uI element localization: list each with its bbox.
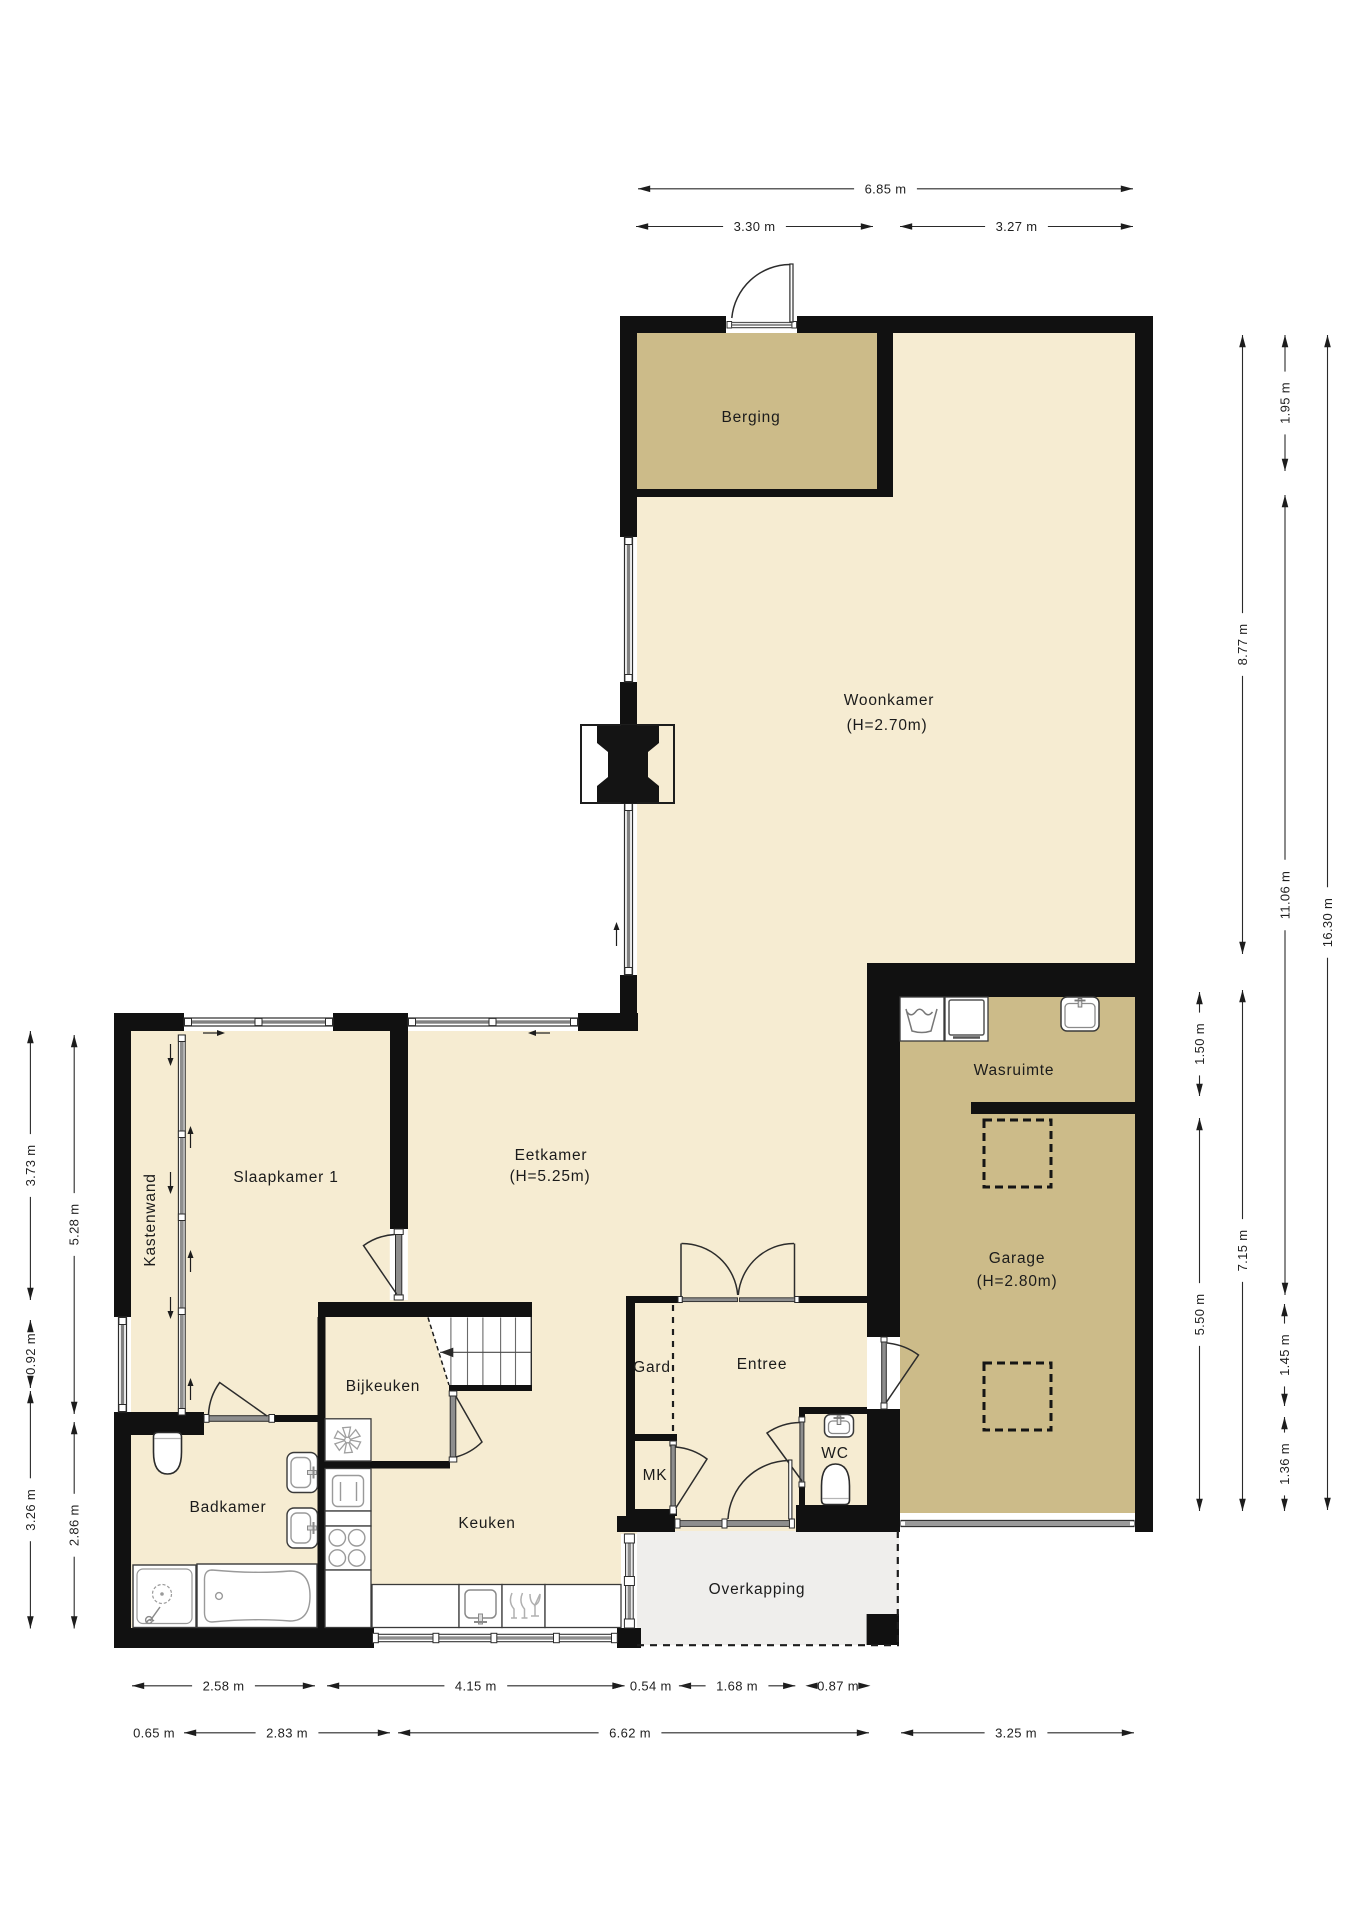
svg-text:5.50 m: 5.50 m <box>1192 1294 1207 1336</box>
svg-text:3.73 m: 3.73 m <box>23 1145 38 1187</box>
svg-text:WC: WC <box>821 1445 848 1462</box>
svg-text:2.58 m: 2.58 m <box>203 1678 245 1693</box>
svg-text:Kastenwand: Kastenwand <box>142 1173 159 1266</box>
svg-text:Gard: Gard <box>633 1359 671 1376</box>
svg-text:2.83 m: 2.83 m <box>266 1725 308 1740</box>
svg-text:Slaapkamer 1: Slaapkamer 1 <box>233 1169 338 1186</box>
svg-text:6.85 m: 6.85 m <box>865 181 907 196</box>
svg-text:Garage: Garage <box>989 1250 1046 1267</box>
svg-text:Badkamer: Badkamer <box>189 1499 266 1516</box>
svg-text:1.50 m: 1.50 m <box>1192 1023 1207 1065</box>
svg-text:8.77 m: 8.77 m <box>1235 624 1250 666</box>
svg-text:(H=5.25m): (H=5.25m) <box>510 1168 591 1185</box>
svg-text:(H=2.80m): (H=2.80m) <box>977 1273 1058 1290</box>
svg-text:3.27 m: 3.27 m <box>996 219 1038 234</box>
svg-text:Wasruimte: Wasruimte <box>974 1062 1055 1079</box>
svg-text:11.06 m: 11.06 m <box>1278 871 1293 919</box>
svg-text:2.86 m: 2.86 m <box>67 1504 82 1546</box>
svg-text:1.68 m: 1.68 m <box>716 1678 758 1693</box>
svg-text:0.92 m: 0.92 m <box>23 1333 38 1375</box>
svg-text:0.65 m: 0.65 m <box>133 1725 175 1740</box>
svg-text:Overkapping: Overkapping <box>709 1581 806 1598</box>
svg-text:16.30 m: 16.30 m <box>1320 898 1335 947</box>
svg-text:0.87 m: 0.87 m <box>817 1678 859 1693</box>
svg-text:3.30 m: 3.30 m <box>734 219 776 234</box>
svg-text:1.45 m: 1.45 m <box>1277 1334 1292 1376</box>
svg-text:5.28 m: 5.28 m <box>67 1204 82 1246</box>
svg-text:3.25 m: 3.25 m <box>995 1725 1037 1740</box>
svg-text:Entree: Entree <box>737 1356 787 1373</box>
svg-text:Berging: Berging <box>721 409 780 426</box>
svg-text:6.62 m: 6.62 m <box>609 1725 651 1740</box>
svg-text:Bijkeuken: Bijkeuken <box>346 1378 420 1395</box>
svg-text:4.15 m: 4.15 m <box>455 1678 497 1693</box>
svg-text:7.15 m: 7.15 m <box>1235 1230 1250 1272</box>
svg-text:0.54 m: 0.54 m <box>630 1678 672 1693</box>
svg-text:(H=2.70m): (H=2.70m) <box>847 717 928 734</box>
svg-text:3.26 m: 3.26 m <box>23 1489 38 1531</box>
svg-text:1.95 m: 1.95 m <box>1278 382 1293 424</box>
svg-text:Eetkamer: Eetkamer <box>515 1147 588 1164</box>
svg-text:MK: MK <box>643 1467 668 1484</box>
svg-text:Woonkamer: Woonkamer <box>844 692 934 709</box>
svg-text:1.36 m: 1.36 m <box>1277 1443 1292 1485</box>
svg-text:Keuken: Keuken <box>458 1515 515 1532</box>
